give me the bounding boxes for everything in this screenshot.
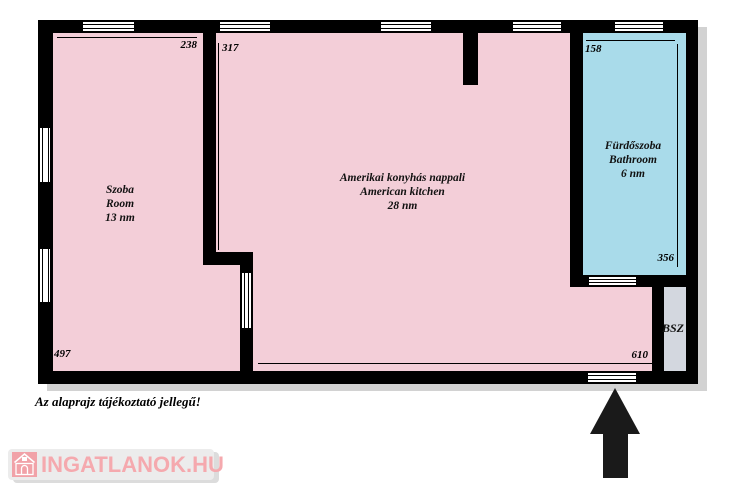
dimension-label: 497 [54,348,71,360]
entrance-door-icon [587,372,637,383]
outer-wall-right [686,20,698,384]
room-label-szoba: Szoba Room 13 nm [60,183,180,225]
window-icon [380,21,432,32]
floor-plan-canvas: 238 497 317 610 158 356 Szoba Room 13 nm… [0,0,730,490]
window-icon [219,21,271,32]
room-name-hu: Amerikai konyhás nappali [310,171,495,185]
room-name-en: American kitchen [310,185,495,199]
room-label-bathroom: Fürdőszoba Bathroom 6 nm [588,139,678,181]
entrance-arrow-icon [590,388,640,434]
dimension-line-238 [57,37,197,38]
dimension-label: 158 [585,43,602,55]
outer-wall-top [38,20,698,33]
room-area: 13 nm [60,211,180,225]
dimension-line-158 [586,40,675,41]
room-label-living: Amerikai konyhás nappali American kitche… [310,171,495,213]
dimension-label: 610 [604,349,648,361]
logo-text: INGATLANOK.HU [41,452,224,478]
dimension-label: 317 [222,42,239,54]
dimension-line-497 [50,47,51,352]
room-name-en: Room [60,197,180,211]
dimension-label: 356 [630,252,674,264]
house-icon [12,452,37,477]
dimension-line-610 [258,363,654,364]
wall-szoba-living-upper [203,33,216,252]
wall-bathroom-left [570,33,583,287]
room-label-bsz: BSZ [662,321,684,336]
entrance-arrow-stem [603,432,628,478]
window-icon [512,21,562,32]
wall-stub-living [463,33,478,85]
room-name-hu: Szoba [60,183,180,197]
room-area: 28 nm [310,199,495,213]
room-area: 6 nm [588,167,678,181]
window-icon [82,21,135,32]
dimension-label: 238 [157,39,197,51]
ingatlanok-logo: INGATLANOK.HU [8,449,214,480]
dimension-line-317 [218,43,219,250]
disclaimer-note: Az alaprajz tájékoztató jellegű! [35,394,201,410]
room-name-en: Bathroom [588,153,678,167]
bathroom-opening-icon [588,276,637,286]
door-opening-icon [241,272,252,329]
window-icon [614,21,664,32]
room-name-hu: Fürdőszoba [588,139,678,153]
